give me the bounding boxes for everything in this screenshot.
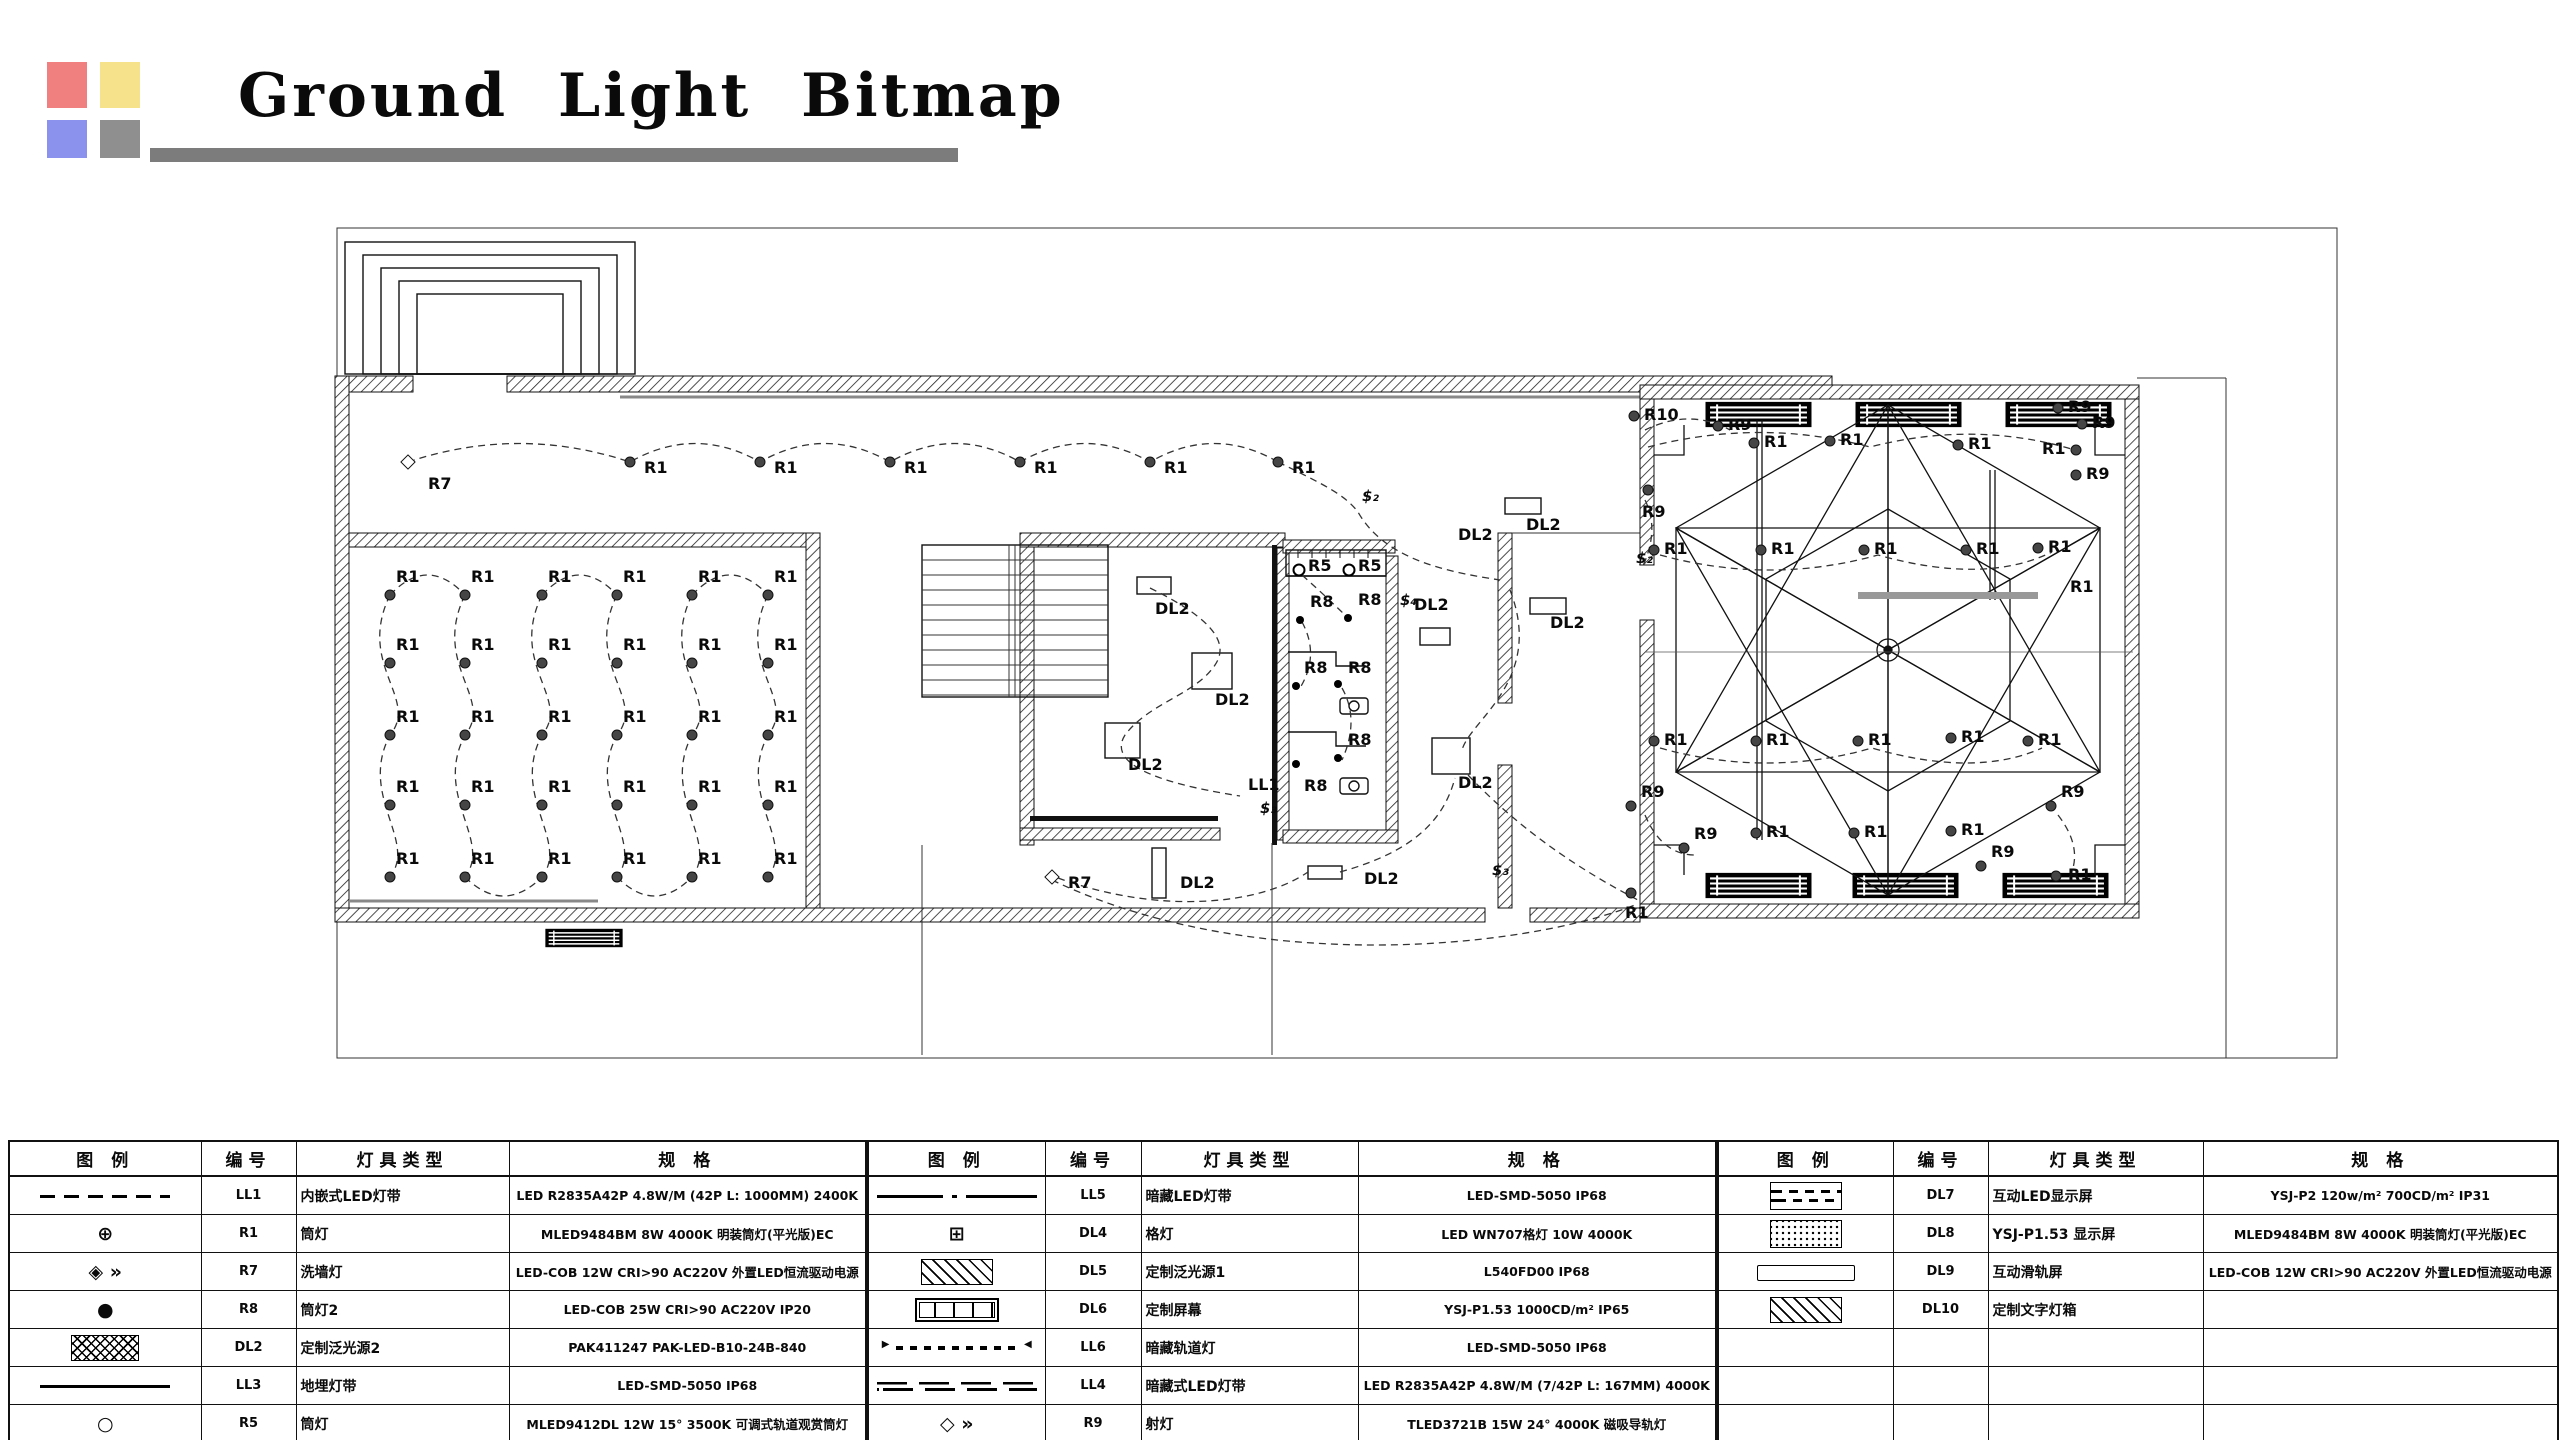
legend-cell-spec: [2203, 1405, 2558, 1440]
legend-symbol-diamondarrow: ◈ »: [88, 1263, 122, 1282]
legend-cell-symbol: [1718, 1291, 1893, 1329]
legend-cell-spec: LED-COB 12W CRI>90 AC220V 外置LED恒流驱动电源: [509, 1253, 866, 1291]
legend-cell-code: DL2: [201, 1329, 296, 1367]
legend-cell-code: LL5: [1045, 1176, 1141, 1215]
legend-cell-type: 筒灯2: [296, 1291, 509, 1329]
legend-symbol-plainrect: [1757, 1265, 1855, 1281]
legend-header-spec: 规 格: [1358, 1141, 1716, 1176]
legend-cell-symbol: [1718, 1329, 1893, 1367]
legend-header-type: 灯具类型: [1141, 1141, 1358, 1176]
display-panel: [2003, 873, 2108, 897]
legend-cell-code: DL9: [1893, 1253, 1988, 1291]
legend-symbol-dbldash: [877, 1382, 1037, 1391]
legend-cell-symbol: [868, 1367, 1045, 1405]
legend-cell-spec: LED R2835A42P 4.8W/M (7/42P L: 167MM) 40…: [1358, 1367, 1716, 1405]
legend-cell-spec: MLED9484BM 8W 4000K 明装筒灯(平光版)EC: [2203, 1215, 2558, 1253]
legend-row: ◈ »R7洗墙灯LED-COB 12W CRI>90 AC220V 外置LED恒…: [9, 1253, 866, 1291]
legend-symbol-gridsq: ⊞: [949, 1225, 965, 1244]
legend-cell-spec: [2203, 1291, 2558, 1329]
legend-cell-code: DL6: [1045, 1291, 1141, 1329]
legend-header-spec: 规 格: [2203, 1141, 2558, 1176]
legend-row: ◇ »R9射灯TLED3721B 15W 24° 4000K 磁吸导轨灯: [868, 1405, 1716, 1440]
legend-cell-symbol: [868, 1253, 1045, 1291]
legend-cell-type: 暗藏式LED灯带: [1141, 1367, 1358, 1405]
display-panel: [1706, 873, 1811, 897]
legend-symbol-solid: [40, 1385, 170, 1388]
legend-cell-symbol: ◇ »: [868, 1405, 1045, 1440]
legend-cell-symbol: [1718, 1367, 1893, 1405]
legend-header-symbol: 图 例: [9, 1141, 201, 1176]
legend-cell-symbol: ◈ »: [9, 1253, 201, 1291]
legend-table-2: 图 例编号灯具类型规 格LL5暗藏LED灯带LED-SMD-5050 IP68⊞…: [867, 1140, 1717, 1440]
legend-row: [1718, 1367, 2558, 1405]
legend-cell-type: 定制屏幕: [1141, 1291, 1358, 1329]
legend-cell-spec: PAK411247 PAK-LED-B10-24B-840: [509, 1329, 866, 1367]
legend-cell-symbol: [868, 1176, 1045, 1215]
legend-cell-code: LL4: [1045, 1367, 1141, 1405]
legend-row: DL6定制屏幕YSJ-P1.53 1000CD/m² IP65: [868, 1291, 1716, 1329]
legend-symbol-centerline: [877, 1195, 1037, 1198]
legend-cell-symbol: [1718, 1405, 1893, 1440]
legend-cell-type: 暗藏轨道灯: [1141, 1329, 1358, 1367]
legend-cell-symbol: [9, 1176, 201, 1215]
legend-cell-code: LL1: [201, 1176, 296, 1215]
legend-row: DL9互动滑轨屏LED-COB 12W CRI>90 AC220V 外置LED恒…: [1718, 1253, 2558, 1291]
legend-row: LL6暗藏轨道灯LED-SMD-5050 IP68: [868, 1329, 1716, 1367]
legend-cell-spec: [2203, 1367, 2558, 1405]
legend-symbol-segrect: [915, 1298, 999, 1322]
legend-cell-code: R8: [201, 1291, 296, 1329]
legend-tables: 图 例编号灯具类型规 格LL1内嵌式LED灯带LED R2835A42P 4.8…: [8, 1140, 2559, 1440]
legend-cell-spec: TLED3721B 15W 24° 4000K 磁吸导轨灯: [1358, 1405, 1716, 1440]
legend-cell-type: 暗藏LED灯带: [1141, 1176, 1358, 1215]
legend-cell-symbol: ⊞: [868, 1215, 1045, 1253]
legend-row: ⊕R1筒灯MLED9484BM 8W 4000K 明装筒灯(平光版)EC: [9, 1215, 866, 1253]
legend-symbol-hatch2: [1770, 1297, 1842, 1323]
legend-cell-spec: LED-COB 12W CRI>90 AC220V 外置LED恒流驱动电源: [2203, 1253, 2558, 1291]
legend-cell-code: R5: [201, 1405, 296, 1440]
legend-symbol-arrowdash: [882, 1344, 1032, 1354]
legend-cell-spec: YSJ-P2 120w/m² 700CD/m² IP31: [2203, 1176, 2558, 1215]
legend-cell-spec: L540FD00 IP68: [1358, 1253, 1716, 1291]
legend-table-3: 图 例编号灯具类型规 格DL7互动LED显示屏YSJ-P2 120w/m² 70…: [1717, 1140, 2559, 1440]
legend-cell-symbol: [868, 1291, 1045, 1329]
legend-symbol-diamondarrow2: ◇ »: [940, 1415, 974, 1434]
legend-row: LL4暗藏式LED灯带LED R2835A42P 4.8W/M (7/42P L…: [868, 1367, 1716, 1405]
legend-row: LL1内嵌式LED灯带LED R2835A42P 4.8W/M (42P L: …: [9, 1176, 866, 1215]
legend-cell-symbol: [868, 1329, 1045, 1367]
legend-cell-code: [1893, 1367, 1988, 1405]
legend-cell-spec: YSJ-P1.53 1000CD/m² IP65: [1358, 1291, 1716, 1329]
display-panel: [2006, 402, 2111, 426]
legend-cell-symbol: [9, 1367, 201, 1405]
legend-header-type: 灯具类型: [296, 1141, 509, 1176]
legend-header-code: 编号: [1045, 1141, 1141, 1176]
legend-cell-type: YSJ-P1.53 显示屏: [1988, 1215, 2203, 1253]
legend-cell-type: [1988, 1367, 2203, 1405]
legend-header-spec: 规 格: [509, 1141, 866, 1176]
legend-cell-symbol: ●: [9, 1291, 201, 1329]
legend-row: ⊞DL4格灯LED WN707格灯 10W 4000K: [868, 1215, 1716, 1253]
legend-cell-code: R9: [1045, 1405, 1141, 1440]
bench: [546, 929, 623, 947]
legend-header-type: 灯具类型: [1988, 1141, 2203, 1176]
legend-row: DL10定制文字灯箱: [1718, 1291, 2558, 1329]
legend-cell-type: [1988, 1405, 2203, 1440]
legend-row: [1718, 1329, 2558, 1367]
legend-cell-code: DL5: [1045, 1253, 1141, 1291]
legend-cell-type: [1988, 1329, 2203, 1367]
legend-cell-type: 内嵌式LED灯带: [296, 1176, 509, 1215]
legend-cell-spec: LED-SMD-5050 IP68: [509, 1367, 866, 1405]
legend-row: DL8YSJ-P1.53 显示屏MLED9484BM 8W 4000K 明装筒灯…: [1718, 1215, 2558, 1253]
legend-row: LL3地埋灯带LED-SMD-5050 IP68: [9, 1367, 866, 1405]
legend-cell-symbol: ○: [9, 1405, 201, 1440]
legend-cell-type: 射灯: [1141, 1405, 1358, 1440]
legend-cell-code: R7: [201, 1253, 296, 1291]
ground-light-bitmap-page: Ground Light Bitmap: [0, 0, 2560, 1440]
legend-cell-type: 互动LED显示屏: [1988, 1176, 2203, 1215]
legend-cell-type: 筒灯: [296, 1215, 509, 1253]
legend-symbol-lldash: [40, 1195, 170, 1198]
legend-cell-type: 定制泛光源2: [296, 1329, 509, 1367]
legend-cell-code: DL7: [1893, 1176, 1988, 1215]
legend-cell-type: 地埋灯带: [296, 1367, 509, 1405]
legend-symbol-fdot: ●: [97, 1301, 114, 1320]
legend-table-1: 图 例编号灯具类型规 格LL1内嵌式LED灯带LED R2835A42P 4.8…: [8, 1140, 867, 1440]
legend-cell-symbol: [1718, 1176, 1893, 1215]
legend-row: DL5定制泛光源1L540FD00 IP68: [868, 1253, 1716, 1291]
legend-row: DL7互动LED显示屏YSJ-P2 120w/m² 700CD/m² IP31: [1718, 1176, 2558, 1215]
legend-cell-type: 格灯: [1141, 1215, 1358, 1253]
legend-header-symbol: 图 例: [1718, 1141, 1893, 1176]
legend-header-code: 编号: [201, 1141, 296, 1176]
legend-cell-symbol: [1718, 1253, 1893, 1291]
legend-cell-code: DL10: [1893, 1291, 1988, 1329]
legend-cell-symbol: ⊕: [9, 1215, 201, 1253]
legend-header-code: 编号: [1893, 1141, 1988, 1176]
legend-symbol-target: ⊕: [97, 1225, 113, 1244]
legend-cell-code: LL6: [1045, 1329, 1141, 1367]
legend-symbol-ocircle: ○: [97, 1415, 114, 1434]
legend-cell-spec: LED-SMD-5050 IP68: [1358, 1329, 1716, 1367]
legend-symbol-dashrect: [1770, 1182, 1842, 1210]
legend-cell-type: 定制泛光源1: [1141, 1253, 1358, 1291]
display-panel: [1706, 402, 1811, 426]
legend-row: ○R5筒灯MLED9412DL 12W 15° 3500K 可调式轨道观赏筒灯: [9, 1405, 866, 1440]
legend-cell-code: [1893, 1405, 1988, 1440]
legend-cell-spec: LED R2835A42P 4.8W/M (42P L: 1000MM) 240…: [509, 1176, 866, 1215]
legend-row: ●R8筒灯2LED-COB 25W CRI>90 AC220V IP20: [9, 1291, 866, 1329]
legend-cell-code: DL8: [1893, 1215, 1988, 1253]
legend-cell-spec: LED WN707格灯 10W 4000K: [1358, 1215, 1716, 1253]
legend-cell-code: [1893, 1329, 1988, 1367]
legend-symbol-dotrect: [1770, 1220, 1842, 1248]
legend-cell-code: R1: [201, 1215, 296, 1253]
legend-cell-type: 互动滑轨屏: [1988, 1253, 2203, 1291]
legend-cell-symbol: [1718, 1215, 1893, 1253]
legend-cell-type: 定制文字灯箱: [1988, 1291, 2203, 1329]
legend-cell-type: 洗墙灯: [296, 1253, 509, 1291]
legend-symbol-hatch: [921, 1259, 993, 1285]
legend-row: LL5暗藏LED灯带LED-SMD-5050 IP68: [868, 1176, 1716, 1215]
legend-cell-type: 筒灯: [296, 1405, 509, 1440]
legend-cell-spec: [2203, 1329, 2558, 1367]
legend-symbol-xhatch: [71, 1335, 139, 1361]
legend-cell-spec: MLED9412DL 12W 15° 3500K 可调式轨道观赏筒灯: [509, 1405, 866, 1440]
legend-cell-spec: MLED9484BM 8W 4000K 明装筒灯(平光版)EC: [509, 1215, 866, 1253]
legend-cell-spec: LED-SMD-5050 IP68: [1358, 1176, 1716, 1215]
legend-cell-code: LL3: [201, 1367, 296, 1405]
legend-cell-spec: LED-COB 25W CRI>90 AC220V IP20: [509, 1291, 866, 1329]
legend-cell-code: DL4: [1045, 1215, 1141, 1253]
legend-row: DL2定制泛光源2PAK411247 PAK-LED-B10-24B-840: [9, 1329, 866, 1367]
legend-header-symbol: 图 例: [868, 1141, 1045, 1176]
legend-cell-symbol: [9, 1329, 201, 1367]
legend-row: [1718, 1405, 2558, 1440]
